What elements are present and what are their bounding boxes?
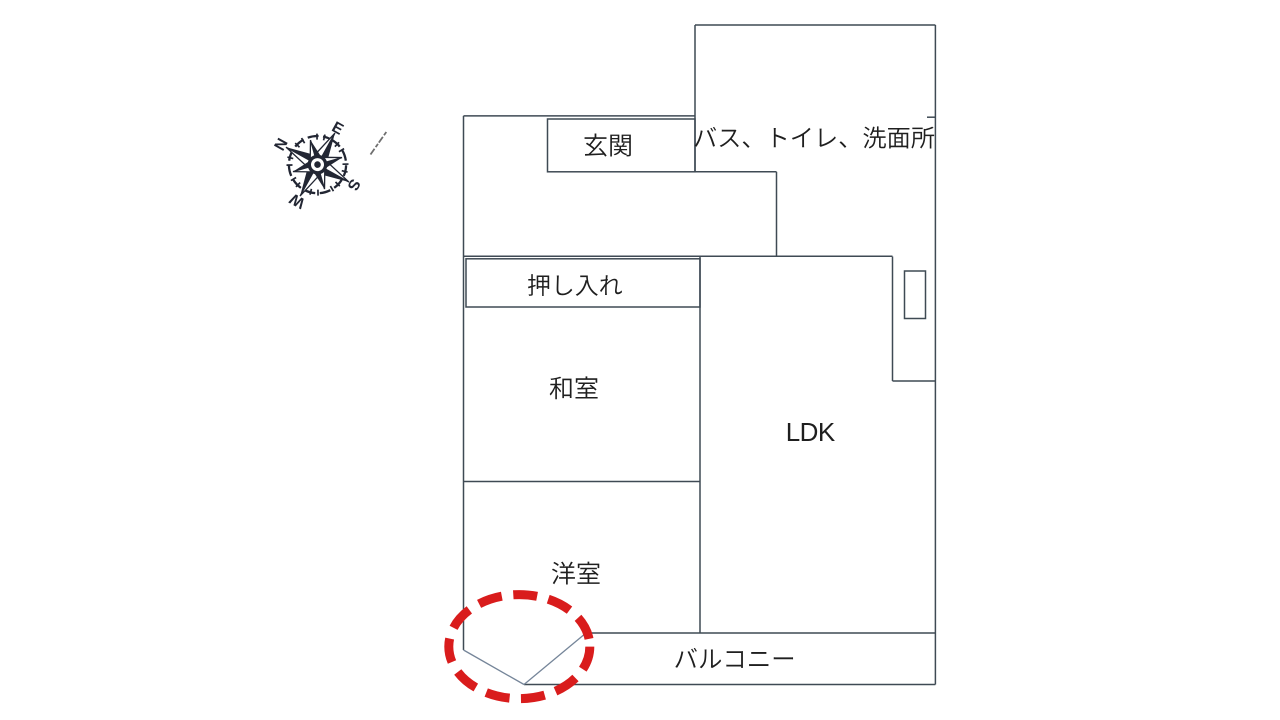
svg-text:LDK: LDK xyxy=(786,417,836,447)
svg-text:N: N xyxy=(271,136,291,154)
svg-text:S: S xyxy=(344,176,364,193)
svg-text:E: E xyxy=(329,119,346,139)
svg-text:W: W xyxy=(287,189,308,211)
